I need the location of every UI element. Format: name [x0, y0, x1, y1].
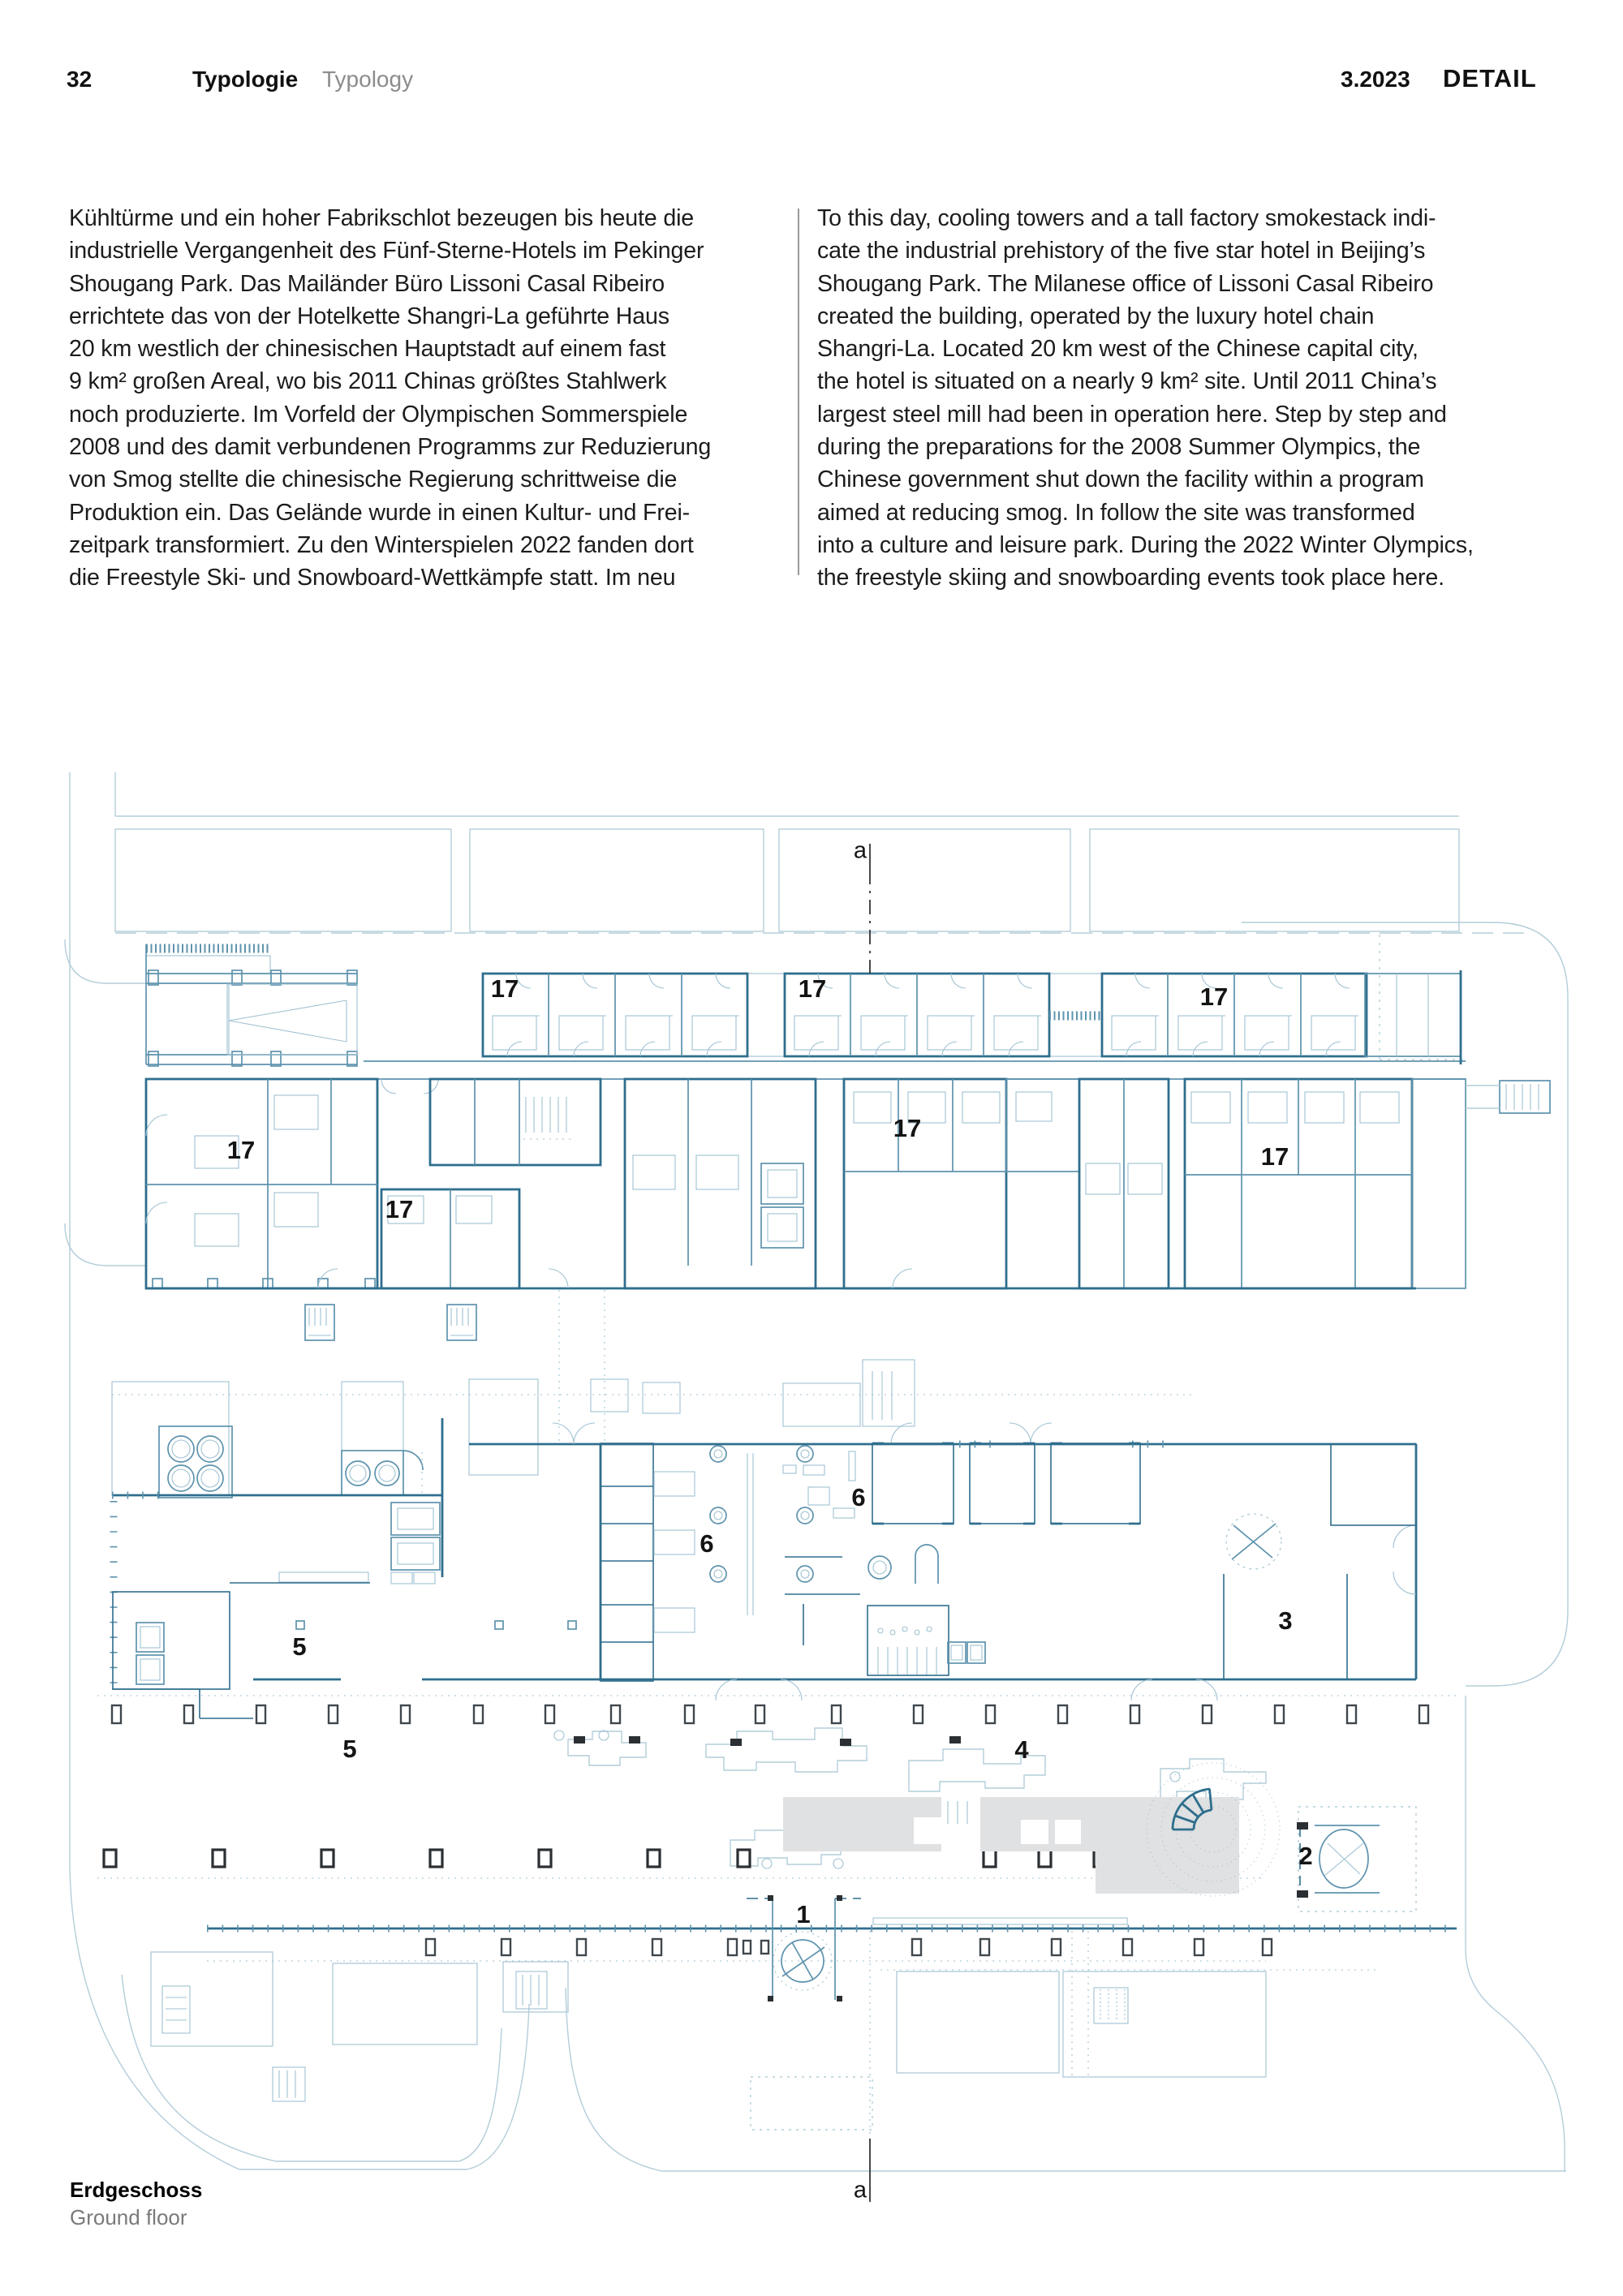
plan-label-5: 5: [292, 1632, 306, 1662]
plan-label-3: 3: [1278, 1606, 1292, 1636]
plan-label-17: 17: [1261, 1142, 1289, 1172]
guest-room-wing: [146, 944, 1550, 1340]
plan-label-5: 5: [342, 1735, 356, 1764]
magazine-page: 32 Typologie Typology 3.2023 DETAIL Kühl…: [0, 0, 1623, 2296]
plan-label-6: 6: [700, 1529, 713, 1559]
plan-label-2: 2: [1298, 1842, 1312, 1871]
plan-label-17: 17: [1200, 982, 1228, 1012]
terrace-garden: [104, 1705, 1457, 2101]
public-level: [112, 1360, 1416, 1718]
plan-label-17: 17: [227, 1136, 255, 1165]
section-marker-a-bottom: a: [854, 2178, 867, 2204]
plan-label-4: 4: [1014, 1735, 1028, 1765]
plan-label-17: 17: [385, 1195, 413, 1224]
plan-label-17: 17: [893, 1114, 921, 1143]
section-marker-a-top: a: [854, 838, 867, 865]
plan-label-6: 6: [851, 1483, 865, 1512]
plan-label-1: 1: [796, 1900, 810, 1929]
plan-label-17: 17: [799, 974, 826, 1004]
terrace-lines: [97, 1395, 1461, 1970]
plan-label-17: 17: [491, 974, 519, 1004]
